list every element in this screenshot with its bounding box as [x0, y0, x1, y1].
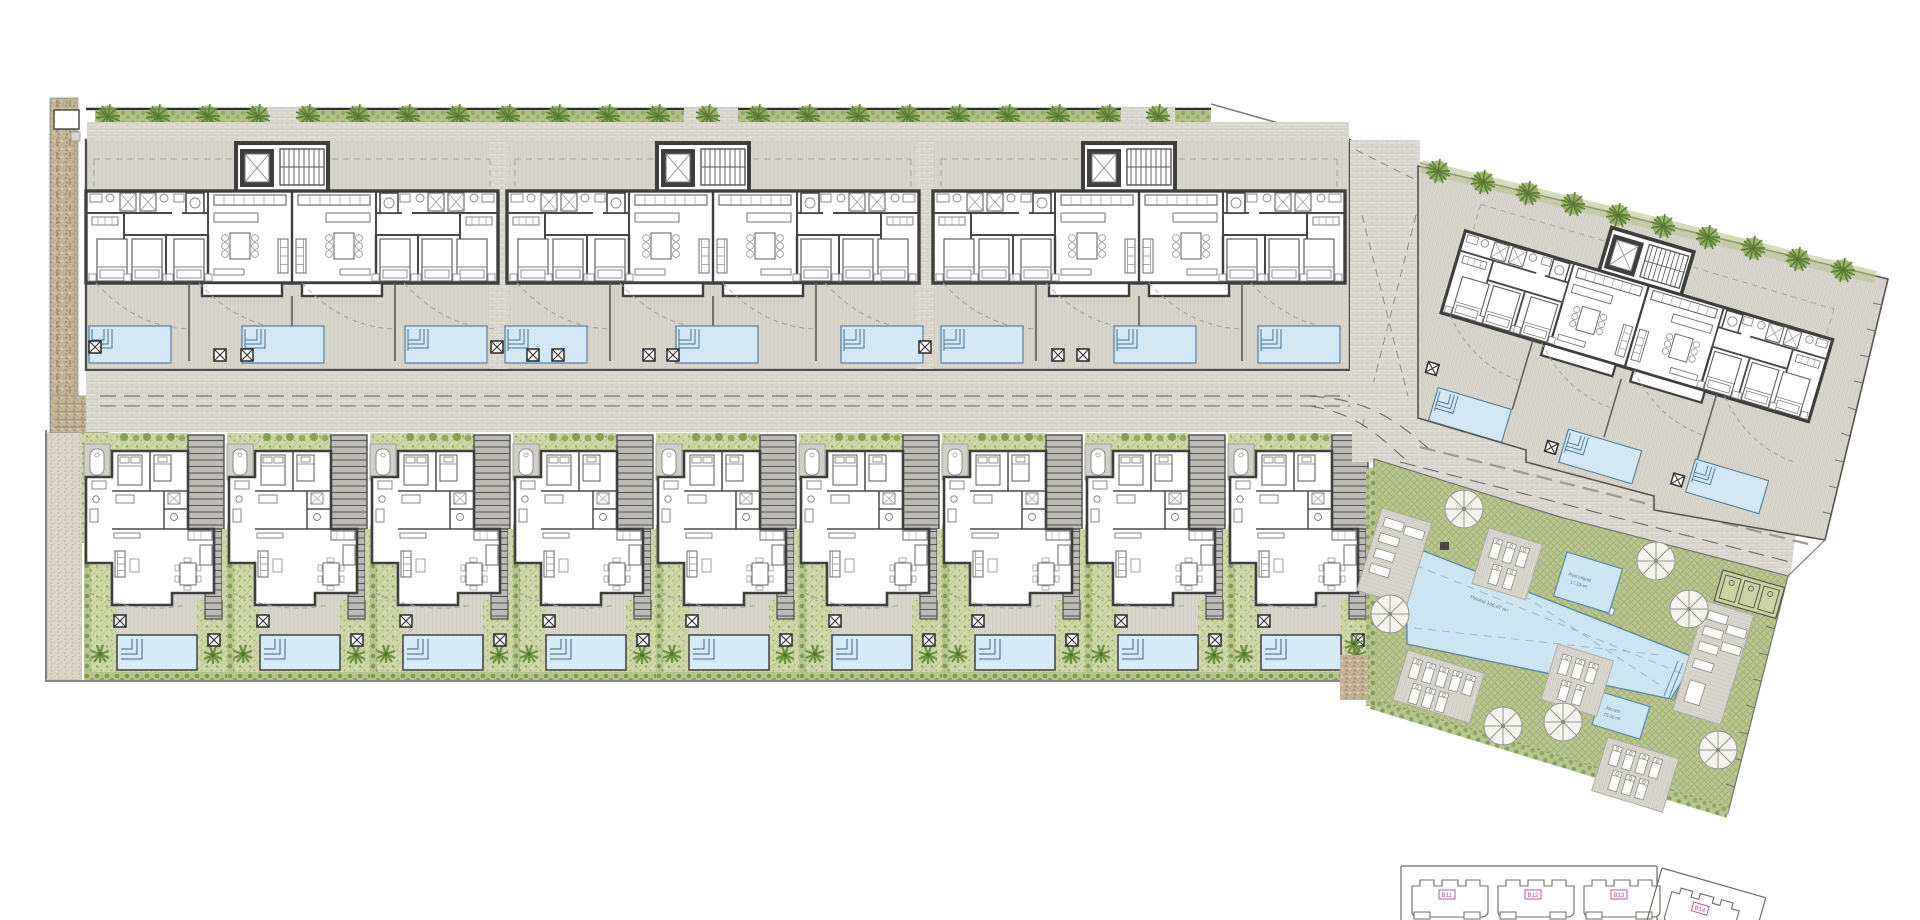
svg-text:B13: B13 — [1614, 893, 1625, 899]
svg-text:B12: B12 — [1528, 893, 1539, 899]
svg-text:B11: B11 — [1442, 893, 1453, 899]
